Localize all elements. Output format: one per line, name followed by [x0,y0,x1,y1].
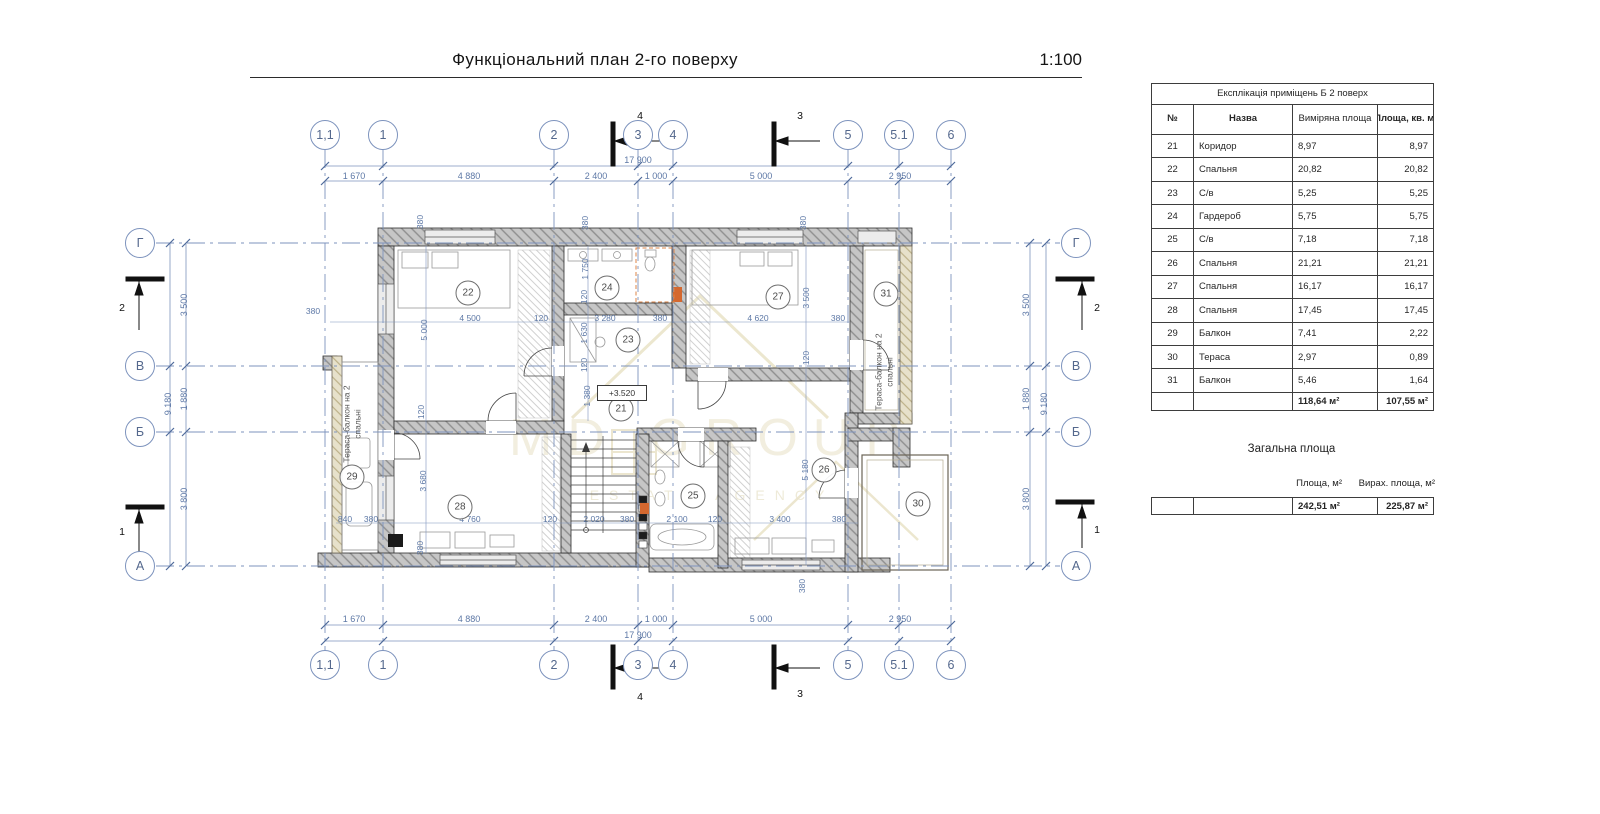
room-bubble: 22 [456,281,481,306]
room-bubble: 26 [812,458,837,483]
dim-plan: 120 [543,514,557,524]
room-bubble: 30 [906,492,931,517]
watermark-subtext: ESTATE AGENCY [590,487,835,503]
explication-totals: 118,64 м² 107,55 м² [1152,393,1433,410]
table-cell: 26 [1152,252,1194,274]
dim-plan: 1 380 [582,385,592,406]
dim-plan: 3 500 [801,287,811,308]
dim-plan: 120 [801,351,811,365]
table-cell: 28 [1152,299,1194,321]
dim-label-right: 1 880 [1021,388,1031,411]
room-bubble: 29 [340,465,365,490]
summary-calc-value: 225,87 м² [1378,498,1433,514]
dim-plan: 120 [579,358,589,372]
grid-bubble-top: 3 [623,120,653,150]
table-cell: Спальня [1194,299,1293,321]
room-bubble: 28 [448,495,473,520]
dim-label-right: 3 500 [1021,294,1031,317]
summary-heading: Загальна площа [1151,443,1432,455]
grid-bubble-bottom: 5.1 [884,650,914,680]
table-row: 21Коридор8,978,97 [1152,135,1433,158]
header-area: Площа, кв. м. [1378,105,1433,134]
explication-table: Експлікація приміщень Б 2 поверх № Назва… [1151,83,1434,411]
terrace-label-left: Тераса-балкон на 2 спальні [341,380,362,468]
table-cell: 5,75 [1378,205,1433,227]
grid-bubble-bottom: 5 [833,650,863,680]
grid-bubble-bottom: 1,1 [310,650,340,680]
grid-bubble-top: 5 [833,120,863,150]
table-cell: Спальня [1194,276,1293,298]
dim-plan: 4 500 [459,313,480,323]
dim-label-bottom: 2 400 [585,614,608,624]
grid-bubble-top: 1,1 [310,120,340,150]
section-label: 1 [119,526,125,538]
table-cell [1194,393,1293,410]
table-cell: 20,82 [1378,158,1433,180]
dim-total-top: 17 900 [624,155,652,165]
dim-plan: 1 630 [579,322,589,343]
table-cell: 17,45 [1378,299,1433,321]
table-row: 28Спальня17,4517,45 [1152,299,1433,322]
dim-plan: 840 [338,514,352,524]
grid-bubble-left: В [125,351,155,381]
dim-plan: 380 [798,216,808,230]
table-row: 26Спальня21,2121,21 [1152,252,1433,275]
dim-label-left: 3 800 [179,488,189,511]
table-cell: Балкон [1194,369,1293,391]
dim-plan: 120 [534,313,548,323]
table-cell [1152,498,1194,514]
table-cell: 20,82 [1293,158,1378,180]
section-label: 3 [797,110,803,122]
dim-plan: 380 [364,514,378,524]
grid-bubble-bottom: 6 [936,650,966,680]
dim-plan: 380 [415,541,425,555]
section-label: 2 [119,302,125,314]
dim-plan: 380 [580,216,590,230]
table-cell: Спальня [1194,252,1293,274]
dim-label-top: 5 000 [750,171,773,181]
section-label: 2 [1094,302,1100,314]
grid-bubble-bottom: 3 [623,650,653,680]
table-row: 22Спальня20,8220,82 [1152,158,1433,181]
dim-plan: 380 [415,215,425,229]
explication-header: № Назва Виміряна площа Площа, кв. м. [1152,105,1433,135]
table-cell: 7,41 [1293,323,1378,345]
table-cell: Балкон [1194,323,1293,345]
table-cell: 21 [1152,135,1194,157]
table-cell: 7,18 [1378,229,1433,251]
room-bubble: 23 [616,328,641,353]
dim-label-bottom: 4 880 [458,614,481,624]
total-area: 107,55 м² [1378,393,1433,410]
dim-total-left: 9 180 [163,393,173,416]
grid-axes [156,150,1060,652]
dim-label-top: 4 880 [458,171,481,181]
grid-bubble-top: 1 [368,120,398,150]
table-cell: 5,25 [1378,182,1433,204]
room-bubble: 31 [874,282,899,307]
dim-plan: 380 [832,514,846,524]
table-cell: 5,25 [1293,182,1378,204]
dim-plan: 380 [306,306,320,316]
dim-label-left: 3 500 [179,294,189,317]
summary-col2-label: Вирах. площа, м² [1315,478,1435,489]
dim-label-bottom: 1 000 [645,614,668,624]
grid-bubble-right: Б [1061,417,1091,447]
table-cell: 17,45 [1293,299,1378,321]
header-num: № [1152,105,1194,134]
table-row: 30Тераса2,970,89 [1152,346,1433,369]
grid-bubble-right: Г [1061,228,1091,258]
table-cell: 22 [1152,158,1194,180]
table-cell: 16,17 [1293,276,1378,298]
explication-title: Експлікація приміщень Б 2 поверх [1152,84,1433,105]
table-cell: 21,21 [1378,252,1433,274]
section-label: 1 [1094,524,1100,536]
table-cell: 8,97 [1378,135,1433,157]
dim-label-left: 1 880 [179,388,189,411]
grid-bubble-top: 4 [658,120,688,150]
table-cell: 5,75 [1293,205,1378,227]
grid-bubble-top: 2 [539,120,569,150]
table-cell: 2,22 [1378,323,1433,345]
elevation-mark: +3.520 [597,385,647,401]
dim-plan: 3 280 [594,313,615,323]
dim-label-top: 2 400 [585,171,608,181]
table-cell: 2,97 [1293,346,1378,368]
header-name: Назва [1194,105,1293,134]
dim-plan: 5 180 [800,459,810,480]
grid-bubble-left: Б [125,417,155,447]
grid-bubble-left: Г [125,228,155,258]
blueprint-page: Функціональний план 2-го поверху 1:100 M… [0,0,1600,814]
summary-row: 242,51 м² 225,87 м² [1151,497,1434,515]
room-bubble: 24 [595,276,620,301]
grid-bubble-top: 5.1 [884,120,914,150]
table-row: 25С/в7,187,18 [1152,229,1433,252]
dim-plan: 380 [797,579,807,593]
table-cell: 8,97 [1293,135,1378,157]
table-row: 24Гардероб5,755,75 [1152,205,1433,228]
table-cell: Коридор [1194,135,1293,157]
explication-rows: 21Коридор8,978,9722Спальня20,8220,8223С/… [1152,135,1433,393]
dim-total-right: 9 180 [1039,393,1049,416]
grid-bubble-bottom: 4 [658,650,688,680]
table-cell: 23 [1152,182,1194,204]
dim-total-bottom: 17 900 [624,630,652,640]
table-row: 29Балкон7,412,22 [1152,323,1433,346]
dim-plan: 2 100 [666,514,687,524]
table-cell: 24 [1152,205,1194,227]
section-label: 3 [797,688,803,700]
table-cell: 7,18 [1293,229,1378,251]
dim-plan: 5 000 [419,319,429,340]
table-cell [1152,393,1194,410]
table-cell [1194,498,1293,514]
table-cell: 29 [1152,323,1194,345]
terrace-label-right: Тераса-балкон на 2 спальні [873,328,894,416]
dim-plan: 3 680 [418,470,428,491]
table-cell: 16,17 [1378,276,1433,298]
dim-plan: 3 400 [769,514,790,524]
table-cell: 31 [1152,369,1194,391]
dim-plan: 120 [579,290,589,304]
table-cell: С/в [1194,182,1293,204]
table-cell: Тераса [1194,346,1293,368]
dim-plan: 120 [416,405,426,419]
table-row: 27Спальня16,1716,17 [1152,276,1433,299]
table-cell: 25 [1152,229,1194,251]
dim-label-right: 3 800 [1021,488,1031,511]
dim-label-bottom: 5 000 [750,614,773,624]
dim-label-top: 1 670 [343,171,366,181]
dim-plan: 2 020 [583,514,604,524]
table-cell: 0,89 [1378,346,1433,368]
table-cell: Гардероб [1194,205,1293,227]
grid-bubble-right: А [1061,551,1091,581]
table-cell: 30 [1152,346,1194,368]
column-block [388,534,403,547]
room-bubble: 25 [681,484,706,509]
dim-label-bottom: 1 670 [343,614,366,624]
dim-label-top: 1 000 [645,171,668,181]
summary-area-value: 242,51 м² [1293,498,1378,514]
table-cell: Спальня [1194,158,1293,180]
dim-label-bottom: 2 950 [889,614,912,624]
dim-plan: 1 750 [580,258,590,279]
dim-plan: 380 [653,313,667,323]
grid-bubble-bottom: 1 [368,650,398,680]
table-cell: С/в [1194,229,1293,251]
table-row: 31Балкон5,461,64 [1152,369,1433,392]
elevation-value: +3.520 [609,388,635,398]
total-measured: 118,64 м² [1293,393,1378,410]
grid-bubble-bottom: 2 [539,650,569,680]
section-label: 4 [637,691,643,703]
dim-plan: 380 [831,313,845,323]
grid-bubble-right: В [1061,351,1091,381]
grid-bubble-left: А [125,551,155,581]
grid-bubble-top: 6 [936,120,966,150]
table-row: 23С/в5,255,25 [1152,182,1433,205]
dim-plan: 4 620 [747,313,768,323]
header-measured: Виміряна площа [1293,105,1378,134]
dim-plan: 120 [708,514,722,524]
table-cell: 1,64 [1378,369,1433,391]
section-label: 4 [637,110,643,122]
table-cell: 27 [1152,276,1194,298]
dim-label-top: 2 950 [889,171,912,181]
room-bubble: 27 [766,285,791,310]
table-cell: 5,46 [1293,369,1378,391]
dim-plan: 380 [620,514,634,524]
table-cell: 21,21 [1293,252,1378,274]
